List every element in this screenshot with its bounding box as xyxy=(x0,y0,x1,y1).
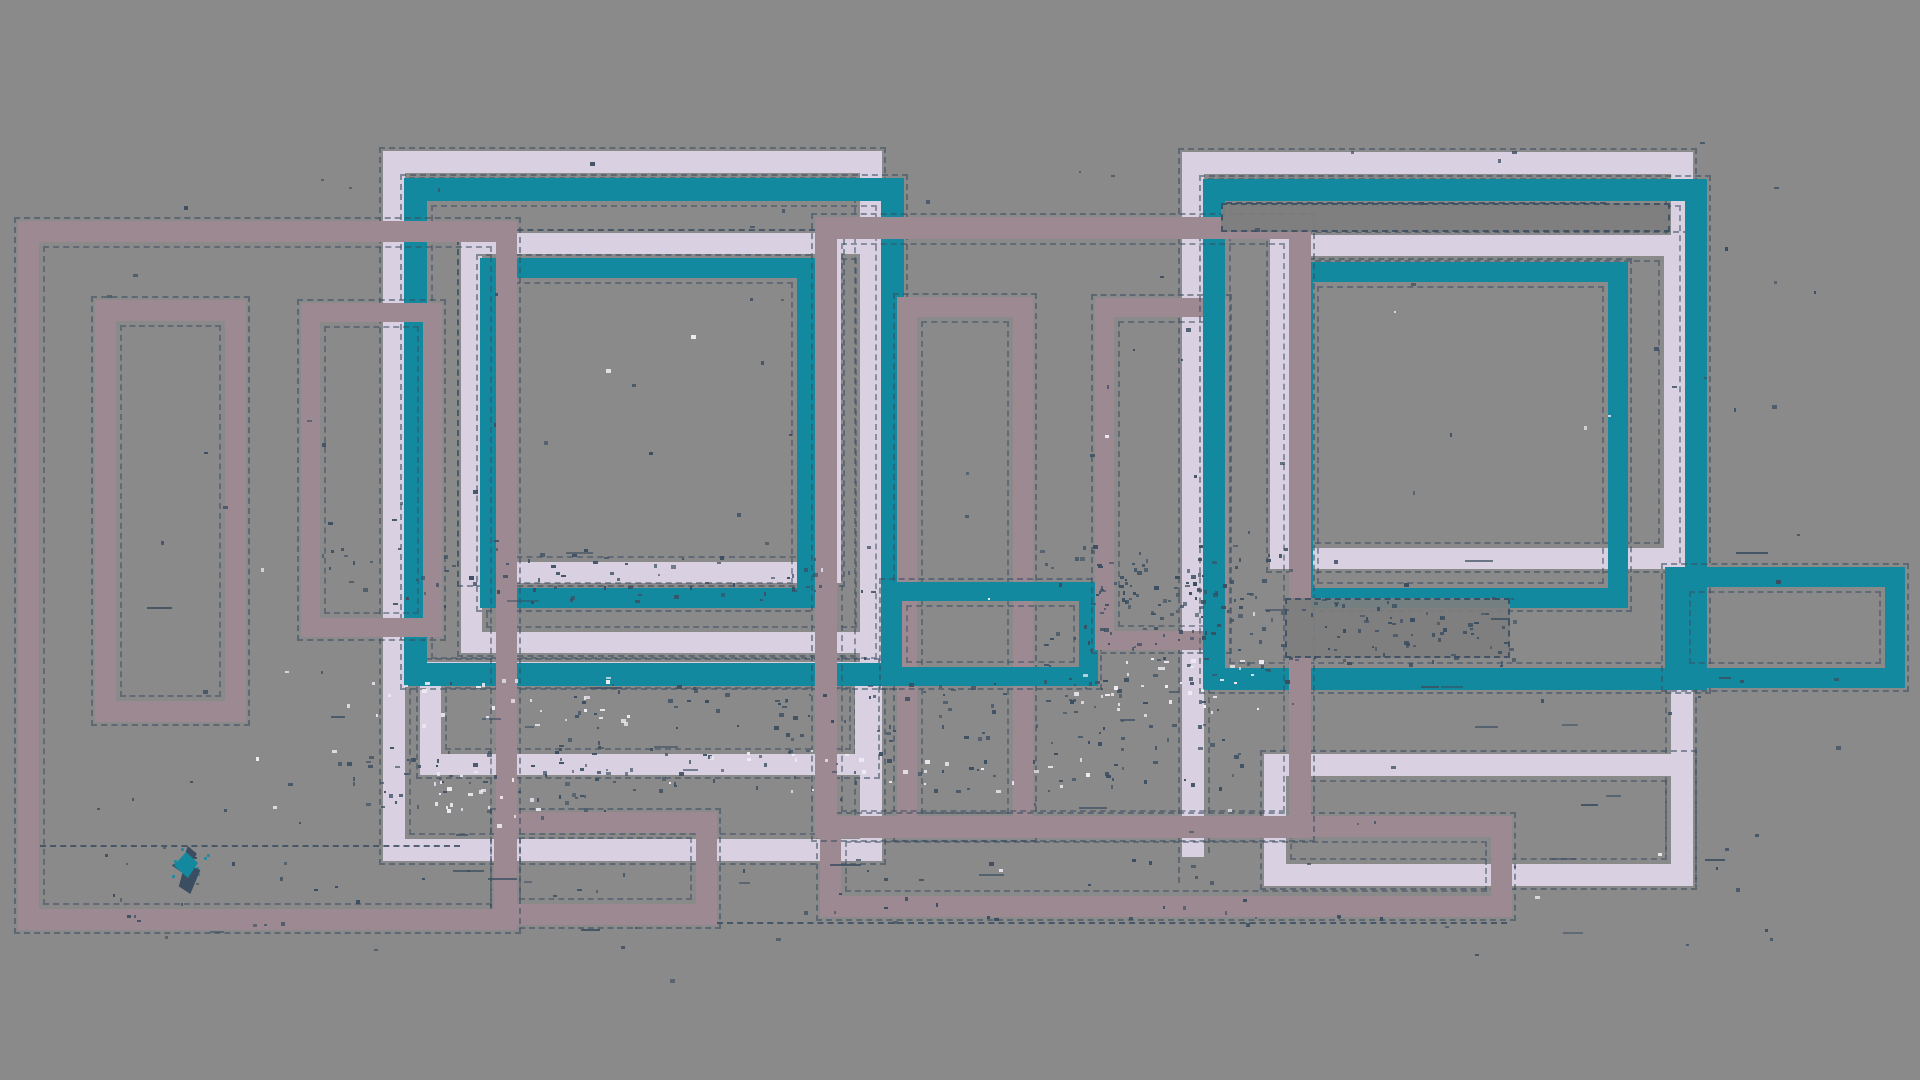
noise-speck xyxy=(422,689,427,693)
noise-speck xyxy=(1271,618,1273,622)
noise-speck xyxy=(374,949,378,951)
noise-speck xyxy=(321,179,324,181)
noise-speck xyxy=(1223,584,1227,588)
noise-speck xyxy=(438,188,440,192)
noise-speck xyxy=(1334,649,1337,651)
noise-speck xyxy=(1044,680,1047,684)
noise-speck xyxy=(1174,587,1178,589)
noise-speck xyxy=(834,911,836,914)
noise-speck xyxy=(1239,606,1243,609)
noise-speck xyxy=(1470,628,1473,630)
noise-speck xyxy=(570,598,573,602)
noise-speck xyxy=(422,878,425,880)
noise-speck xyxy=(369,756,374,759)
noise-speck xyxy=(1502,626,1505,629)
noise-speck xyxy=(1086,773,1090,777)
noise-speck xyxy=(1089,682,1092,686)
noise-speck xyxy=(671,565,676,569)
noise-speck xyxy=(792,754,795,756)
noise-speck xyxy=(1199,606,1204,609)
noise-speck xyxy=(353,777,355,781)
noise-speck xyxy=(1198,573,1201,577)
noise-speck xyxy=(322,443,326,447)
noise-speck xyxy=(207,854,210,857)
noise-speck xyxy=(1492,597,1495,600)
noise-speck xyxy=(1608,415,1611,417)
noise-speck xyxy=(544,441,548,445)
noise-speck xyxy=(676,727,678,729)
noise-speck xyxy=(1044,664,1049,666)
noise-speck xyxy=(1121,748,1124,751)
mauve-right-low-frame-inner-contour xyxy=(845,841,1487,892)
noise-speck xyxy=(743,869,745,873)
noise-speck xyxy=(782,209,785,213)
noise-speck xyxy=(756,786,758,790)
noise-speck xyxy=(341,548,344,551)
noise-speck xyxy=(621,946,625,949)
noise-speck xyxy=(1048,790,1050,792)
noise-speck xyxy=(273,806,277,809)
noise-speck xyxy=(638,594,642,596)
noise-speck xyxy=(1314,656,1316,659)
noise-speck xyxy=(1176,610,1178,613)
noise-speck xyxy=(1238,649,1241,651)
noise-speck xyxy=(1438,638,1441,642)
noise-speck xyxy=(1468,623,1473,627)
noise-speck xyxy=(889,725,891,729)
noise-speck xyxy=(437,772,440,776)
noise-speck xyxy=(1119,694,1122,698)
noise-speck xyxy=(840,798,842,801)
noise-speck xyxy=(1195,597,1197,600)
noise-speck xyxy=(190,781,193,783)
noise-speck xyxy=(584,808,588,812)
noise-speck xyxy=(1261,665,1264,669)
noise-speck xyxy=(668,699,673,703)
noise-speck xyxy=(867,546,871,549)
noise-speck xyxy=(924,770,927,773)
noise-speck xyxy=(845,754,849,756)
noise-speck xyxy=(703,754,707,756)
noise-speck xyxy=(808,715,810,717)
noise-speck xyxy=(778,703,781,705)
noise-speck xyxy=(1167,738,1169,742)
noise-speck xyxy=(604,557,609,559)
noise-speck xyxy=(1169,700,1172,704)
noise-speck xyxy=(1114,764,1118,766)
noise-speck xyxy=(400,502,403,505)
noise-speck xyxy=(497,590,500,594)
noise-speck xyxy=(416,579,418,581)
noise-speck xyxy=(1143,702,1148,704)
noise-speck xyxy=(449,775,453,777)
noise-speck xyxy=(1259,640,1262,644)
noise-speck xyxy=(444,605,446,608)
noise-speck xyxy=(649,452,653,455)
noise-speck xyxy=(1307,863,1311,865)
noise-speck xyxy=(518,791,521,793)
noise-speck xyxy=(450,682,452,685)
noise-speck xyxy=(764,592,766,596)
noise-speck xyxy=(1251,674,1254,676)
noise-speck xyxy=(1392,623,1396,625)
noise-speck xyxy=(1240,660,1245,662)
noise-speck xyxy=(452,565,456,567)
noise-speck xyxy=(964,736,969,739)
mauve-middle-big-frame-outer-contour xyxy=(811,213,1315,842)
noise-speck xyxy=(1112,778,1114,781)
noise-speck xyxy=(1364,620,1369,623)
noise-speck xyxy=(1088,884,1091,886)
noise-speck xyxy=(349,187,352,189)
noise-speck xyxy=(453,870,484,872)
noise-speck xyxy=(1248,531,1250,534)
noise-speck xyxy=(855,781,857,785)
noise-speck xyxy=(418,765,421,768)
noise-speck xyxy=(380,782,384,784)
noise-speck xyxy=(786,733,790,737)
noise-speck xyxy=(1123,591,1125,595)
noise-speck xyxy=(349,581,354,583)
noise-speck xyxy=(285,671,289,673)
noise-speck xyxy=(1240,598,1244,600)
noise-speck xyxy=(1160,276,1164,278)
mauve-left-low-frame-inner-contour xyxy=(519,837,692,900)
noise-speck xyxy=(1658,853,1662,856)
noise-speck xyxy=(424,592,426,595)
noise-speck xyxy=(1144,568,1148,572)
noise-speck xyxy=(1136,594,1139,597)
noise-speck xyxy=(1668,712,1672,715)
noise-speck xyxy=(1034,803,1036,806)
noise-speck xyxy=(1184,779,1186,781)
noise-speck xyxy=(760,599,763,601)
noise-speck xyxy=(468,793,473,796)
noise-speck xyxy=(448,751,450,754)
noise-speck xyxy=(939,685,942,688)
noise-speck xyxy=(1440,616,1445,620)
noise-speck xyxy=(721,769,724,772)
noise-speck xyxy=(1132,859,1136,862)
noise-speck xyxy=(905,697,910,701)
mauve-left-tall-frame xyxy=(301,303,442,637)
noise-speck xyxy=(606,369,611,373)
noise-speck xyxy=(592,753,597,755)
noise-speck xyxy=(224,809,227,812)
noise-speck xyxy=(556,572,560,575)
noise-speck xyxy=(977,769,979,771)
noise-speck xyxy=(494,423,496,427)
noise-speck xyxy=(482,683,485,687)
noise-speck xyxy=(161,541,164,545)
noise-speck xyxy=(613,781,616,783)
noise-speck xyxy=(500,796,503,799)
noise-speck xyxy=(1099,591,1101,594)
noise-speck xyxy=(528,559,530,563)
noise-speck xyxy=(633,789,636,791)
noise-speck xyxy=(988,598,990,600)
noise-speck xyxy=(559,762,564,764)
noise-speck xyxy=(1180,605,1184,608)
noise-speck xyxy=(771,577,775,579)
noise-speck xyxy=(1512,658,1516,662)
noise-speck xyxy=(1194,475,1197,478)
noise-speck xyxy=(1725,848,1729,851)
noise-speck xyxy=(991,704,994,708)
noise-speck xyxy=(1698,696,1701,698)
noise-speck xyxy=(434,782,436,786)
noise-speck xyxy=(1704,377,1707,379)
noise-speck xyxy=(832,771,837,773)
noise-speck xyxy=(1168,600,1171,602)
noise-speck xyxy=(1383,653,1385,657)
noise-speck xyxy=(994,918,999,921)
noise-speck xyxy=(196,883,199,885)
noise-speck xyxy=(604,810,606,812)
noise-speck xyxy=(538,578,540,582)
noise-speck xyxy=(1164,661,1169,663)
noise-speck xyxy=(1098,742,1102,746)
noise-speck xyxy=(1740,680,1744,683)
noise-speck xyxy=(440,781,442,784)
noise-speck xyxy=(1059,780,1063,782)
noise-speck xyxy=(1111,785,1113,789)
noise-speck xyxy=(132,798,134,801)
noise-speck xyxy=(482,718,501,720)
noise-speck xyxy=(575,797,578,799)
noise-speck xyxy=(1426,612,1428,615)
noise-speck xyxy=(689,760,691,764)
noise-speck xyxy=(1085,687,1087,689)
noise-speck xyxy=(966,472,969,475)
noise-speck xyxy=(1797,534,1800,536)
noise-speck xyxy=(590,162,595,166)
noise-speck xyxy=(512,778,514,782)
noise-speck xyxy=(1125,582,1128,585)
noise-speck xyxy=(1231,619,1234,622)
noise-speck xyxy=(1098,566,1103,568)
noise-speck xyxy=(737,725,739,727)
noise-speck xyxy=(1511,598,1514,600)
noise-speck xyxy=(1347,662,1352,665)
noise-speck xyxy=(1165,685,1168,688)
noise-speck xyxy=(1262,627,1266,631)
mauve-left-tall-frame-inner-contour xyxy=(324,326,419,614)
noise-speck xyxy=(674,706,678,708)
noise-speck xyxy=(97,808,100,810)
noise-speck xyxy=(1302,609,1306,611)
noise-speck xyxy=(1045,563,1048,566)
noise-speck xyxy=(1491,618,1509,620)
noise-speck xyxy=(1477,637,1479,639)
noise-speck xyxy=(625,563,628,565)
noise-speck xyxy=(1509,648,1514,651)
noise-speck xyxy=(1836,746,1841,750)
noise-speck xyxy=(1328,648,1330,650)
noise-speck xyxy=(1088,641,1090,645)
noise-speck xyxy=(597,727,599,729)
noise-speck xyxy=(531,765,535,767)
noise-speck xyxy=(1549,858,1576,860)
noise-speck xyxy=(948,708,952,711)
noise-speck xyxy=(1563,932,1583,934)
noise-speck xyxy=(765,542,769,545)
noise-speck xyxy=(1253,612,1255,616)
noise-speck xyxy=(488,806,490,809)
noise-speck xyxy=(578,711,581,715)
noise-speck xyxy=(978,737,982,741)
noise-speck xyxy=(256,757,259,761)
noise-speck xyxy=(299,822,301,824)
stray-dash-line-bottom xyxy=(717,922,1507,924)
noise-speck xyxy=(1243,899,1247,902)
noise-speck xyxy=(1413,491,1415,495)
noise-speck xyxy=(1336,604,1338,606)
noise-speck xyxy=(1129,917,1133,920)
noise-speck xyxy=(750,226,755,228)
noise-speck xyxy=(406,597,409,600)
noise-speck xyxy=(635,927,637,929)
noise-speck xyxy=(479,790,483,794)
noise-speck xyxy=(1080,557,1085,561)
noise-speck xyxy=(747,752,750,755)
noise-speck xyxy=(392,519,397,521)
noise-speck xyxy=(1047,644,1049,646)
noise-speck xyxy=(809,694,811,696)
noise-speck xyxy=(628,586,633,589)
noise-speck xyxy=(120,898,122,902)
noise-speck xyxy=(137,920,141,922)
noise-speck xyxy=(483,781,488,783)
noise-speck xyxy=(1292,703,1294,705)
noise-speck xyxy=(739,882,750,884)
noise-speck xyxy=(598,741,600,745)
noise-speck xyxy=(1199,545,1203,548)
noise-speck xyxy=(461,808,463,811)
noise-speck xyxy=(1772,405,1777,409)
noise-speck xyxy=(1101,695,1103,698)
noise-speck xyxy=(1409,663,1413,667)
noise-speck xyxy=(174,860,177,863)
noise-speck xyxy=(1212,674,1217,676)
noise-speck xyxy=(1475,954,1479,956)
noise-speck xyxy=(674,785,677,787)
noise-speck xyxy=(1096,594,1099,596)
noise-speck xyxy=(1091,550,1095,554)
noise-speck xyxy=(1215,591,1218,595)
noise-speck xyxy=(1103,680,1108,682)
noise-speck xyxy=(344,555,348,557)
noise-speck xyxy=(1279,554,1282,558)
noise-speck xyxy=(1219,787,1222,791)
noise-speck xyxy=(184,206,188,210)
noise-speck xyxy=(1129,598,1132,600)
noise-speck xyxy=(203,690,208,694)
noise-speck xyxy=(474,771,478,773)
noise-speck xyxy=(737,513,741,517)
noise-speck xyxy=(1050,638,1054,640)
noise-speck xyxy=(1155,746,1157,750)
noise-speck xyxy=(1056,632,1060,636)
noise-speck xyxy=(1139,552,1141,555)
noise-speck xyxy=(1146,559,1148,563)
noise-speck xyxy=(825,759,828,762)
noise-speck xyxy=(986,736,990,740)
noise-speck xyxy=(555,751,559,754)
noise-speck xyxy=(779,713,784,717)
noise-speck xyxy=(469,782,471,784)
noise-speck xyxy=(1105,694,1110,696)
noise-speck xyxy=(338,762,342,766)
noise-speck xyxy=(506,563,509,565)
noise-speck xyxy=(1541,699,1544,703)
noise-speck xyxy=(1239,558,1241,562)
noise-speck xyxy=(488,878,516,880)
noise-speck xyxy=(1195,613,1199,617)
noise-speck xyxy=(559,745,564,747)
noise-speck xyxy=(395,766,400,768)
noise-speck xyxy=(1074,711,1078,713)
noise-speck xyxy=(590,687,622,689)
noise-speck xyxy=(1259,660,1264,664)
noise-speck xyxy=(1725,247,1728,251)
noise-speck xyxy=(1075,557,1079,561)
noise-speck xyxy=(781,299,784,301)
noise-speck xyxy=(444,555,448,559)
noise-speck xyxy=(502,679,506,683)
noise-speck xyxy=(551,565,556,568)
noise-speck xyxy=(1176,593,1180,597)
noise-speck xyxy=(172,875,175,878)
noise-speck xyxy=(1191,575,1196,579)
noise-speck xyxy=(747,758,751,761)
noise-speck xyxy=(1193,582,1197,586)
noise-speck xyxy=(1322,599,1327,601)
noise-speck xyxy=(490,904,492,907)
noise-speck xyxy=(967,788,970,790)
noise-speck xyxy=(635,600,640,603)
noise-speck xyxy=(366,761,371,763)
noise-speck xyxy=(669,782,671,784)
noise-speck xyxy=(421,576,425,580)
noise-speck xyxy=(789,434,792,436)
noise-speck xyxy=(1285,680,1290,684)
noise-speck xyxy=(404,685,408,687)
noise-speck xyxy=(1247,662,1250,666)
noise-speck xyxy=(1203,705,1206,708)
noise-speck xyxy=(1099,732,1101,734)
noise-speck xyxy=(1406,646,1409,648)
noise-speck xyxy=(884,907,888,909)
noise-speck xyxy=(1776,580,1781,584)
noise-speck xyxy=(800,734,804,737)
noise-speck xyxy=(844,720,846,723)
noise-speck xyxy=(1268,554,1270,557)
noise-speck xyxy=(281,922,285,926)
noise-speck xyxy=(1198,725,1202,729)
noise-speck xyxy=(612,684,614,686)
noise-speck xyxy=(982,732,985,734)
noise-speck xyxy=(806,586,810,588)
noise-speck xyxy=(1755,834,1759,837)
noise-speck xyxy=(347,762,352,766)
noise-speck xyxy=(1034,770,1039,773)
noise-speck xyxy=(1400,619,1403,623)
noise-speck xyxy=(1065,695,1068,697)
stray-dash-line-left xyxy=(40,845,460,847)
teal-right-ext-frame xyxy=(1665,567,1905,688)
noise-speck xyxy=(1295,659,1299,661)
